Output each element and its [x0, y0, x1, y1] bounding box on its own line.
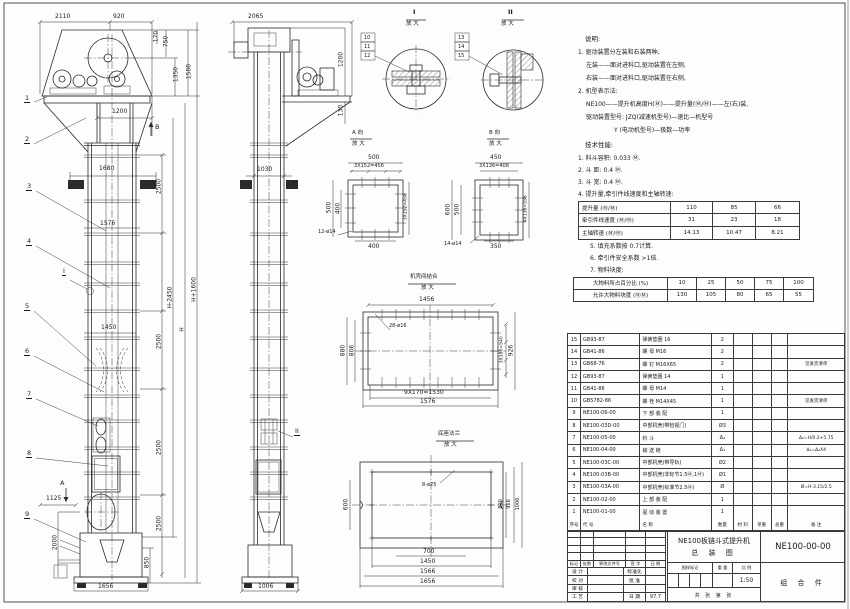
view-b-holes: 14-ø14	[444, 241, 462, 247]
balloon-14: 14	[458, 44, 464, 50]
detail-ii-subtitle: 放 大	[501, 21, 514, 28]
lump-table-row: 大物料所占百分比 (%) 10 25 50 75 100	[574, 278, 813, 290]
balloon-15: 15	[458, 53, 464, 59]
bom-row: 2 NE100-02-00 上 部 装 配 1	[568, 494, 844, 506]
balloon-10: 10	[364, 35, 370, 41]
dim-h-minus-2450: H-2450	[167, 281, 174, 315]
speed-table-row: 提升量 (Ⓜ/Ⓜ) 110 85 66	[579, 202, 799, 214]
sheet-count: 共 张 第 张	[668, 588, 760, 602]
view-a-subtitle: 放 大	[352, 141, 365, 148]
weight-label: 重 量	[713, 563, 733, 574]
side-elevation-view	[228, 20, 354, 593]
balloon-13: 13	[458, 35, 464, 41]
balloon-7: 7	[26, 391, 32, 399]
bom-row: 4 NE100-03B-00 中部机壳(非标节1.5Ⓜ,1Ⓜ) Ø1	[568, 469, 844, 481]
dim-h-plus-1600: H+1600	[191, 273, 198, 307]
bom-row: 11 GB41-86 螺 母 M14 1	[568, 383, 844, 395]
spec-item-6: 6. 牵引件安全系数 >1倍.	[590, 255, 658, 262]
dim-2065: 2065	[248, 13, 263, 20]
view-b-dim-bottom: 350	[490, 243, 501, 250]
speed-table: 提升量 (Ⓜ/Ⓜ) 110 85 66 牵引件线速度 (Ⓜ/Ⓜ) 31 23 1…	[578, 201, 800, 240]
balloon-1: 1	[24, 95, 30, 103]
rev-col-sign: 签 字	[626, 561, 646, 568]
spec-item-4: 4. 提升量,牵引件线速度和主轴转速:	[578, 191, 674, 198]
bom-row: 8 NE100-03D-00 中部机壳(带检视门) Ø3	[568, 420, 844, 432]
dim-2500-2: 2500	[156, 325, 163, 359]
base-dim-1006: 1006	[515, 487, 521, 521]
rev-col-mark: 标记	[568, 561, 581, 568]
base-dim-600: 600	[343, 488, 350, 522]
balloon-5: 5	[24, 303, 30, 311]
dim-2500-4: 2500	[156, 507, 163, 541]
balloon-12: 12	[364, 53, 370, 59]
dim-850: 850	[144, 546, 151, 580]
balloon-4: 4	[26, 238, 32, 246]
spec-item-3: 3. 斗 宽: 0.4 Ⓜ.	[578, 179, 623, 186]
title-block-right: NE100-00-00 组 合 件	[761, 531, 845, 602]
view-a-dim-left2: 400	[335, 192, 342, 226]
stamp-box-row: 1:50	[668, 574, 760, 588]
spec-item-7: 7. 物料块度:	[590, 267, 624, 274]
bom-row: 3 NE100-03A-00 中部机壳(标准节2.5Ⓜ) Ø Ø=H-3.15/…	[568, 482, 844, 494]
dim-920: 920	[113, 13, 124, 20]
base-flange-detail	[350, 441, 522, 588]
base-dim-700: 700	[423, 548, 434, 555]
bom-row: 14 GB41-86 螺 母 M16 2	[568, 346, 844, 358]
view-a-title: A 向	[352, 130, 363, 137]
dim-1576: 1576	[100, 220, 115, 227]
note-line-3: 右装——面对进料口,驱动装置在右侧,	[586, 75, 686, 82]
lump-size-table: 大物料所占百分比 (%) 10 25 50 75 100 允许大物料块度 (ⓂⓂ…	[573, 277, 814, 302]
view-a-dim-right: 3X152=456	[403, 190, 409, 224]
view-b-title: B 向	[489, 130, 500, 137]
base-dim-1566: 1566	[420, 568, 435, 575]
front-elevation-view	[42, 30, 156, 588]
bom-table: 15 GB93-87 弹簧垫圈 16 2 14 GB41-86 螺 母 M16 …	[567, 333, 845, 532]
dim-1200: 1200	[112, 108, 127, 115]
notes-heading: 说明:	[585, 36, 600, 43]
note-line-7: Y (电动机型号)—极数—功率	[614, 127, 690, 134]
bom-row: 10 GB5782-86 螺 栓 M14X45 1 见发货清单	[568, 395, 844, 407]
dim-2110: 2110	[55, 13, 70, 20]
balloon-8: 8	[26, 450, 32, 458]
joint-dim-540: 3X180=540	[499, 333, 505, 367]
scale-value: 1:50	[733, 574, 760, 588]
note-line-4: 2. 机型表示法:	[578, 88, 618, 95]
view-b-dim-top: 450	[490, 154, 501, 161]
balloon-6: 6	[24, 348, 30, 356]
dim-750: 750	[163, 25, 170, 59]
base-dim-1450: 1450	[420, 558, 435, 565]
dim-side-1200: 1200	[338, 43, 345, 77]
base-detail-title: 底座法兰	[438, 431, 460, 438]
drawing-title: NE100板链斗式提升机	[678, 536, 750, 546]
joint-detail-subtitle: 放 大	[421, 285, 434, 292]
detail-marker-i: I	[62, 268, 66, 276]
base-dim-1656: 1656	[420, 578, 435, 585]
view-b-dim-right: 4X139=556	[523, 192, 529, 226]
revision-grid: 标记 处数 更改文件号 签 字 日 期	[568, 531, 667, 568]
dim-2500-3: 2500	[156, 431, 163, 465]
bom-row: 9 NE100-06-00 下 部 装 配 1	[568, 408, 844, 420]
signature-row: 审 核	[568, 585, 667, 593]
view-a-dim-bottom: 400	[368, 243, 379, 250]
title-block-left: 标记 处数 更改文件号 签 字 日 期 设 计 标准化 校 对 批 准	[568, 531, 668, 602]
part-type: 组 合 件	[761, 563, 845, 602]
bom-row: 5 NE100-03C-00 中部机壳(带导轨) Ø2	[568, 457, 844, 469]
view-b-dim-left: 600	[445, 193, 452, 227]
joint-dim-1576: 1576	[420, 398, 435, 405]
joint-dim-806: 806	[349, 334, 356, 368]
signature-row: 设 计 标准化	[568, 568, 667, 576]
note-line-1: 1. 驱动装置分左装和右装两种,	[578, 49, 660, 56]
joint-detail-title: 机壳间结合	[410, 274, 438, 281]
detail-i-view	[361, 20, 450, 113]
joint-dim-926: 926	[508, 334, 515, 368]
drawing-number: NE100-00-00	[761, 531, 845, 563]
bom-row: 7 NE100-05-00 料 斗 Δ₂ Δ₂=H/0.2+5.75	[568, 432, 844, 444]
title-block-middle: NE100板链斗式提升机 总 装 图 图样标记 重 量 比 例 1:50 共 张…	[668, 531, 761, 602]
signature-row: 校 对 批 准	[568, 576, 667, 584]
dim-1350: 1350	[173, 58, 180, 92]
view-b-subtitle: 放 大	[489, 141, 502, 148]
bom-row: 12 GB93-87 弹簧垫圈 14 1	[568, 371, 844, 383]
base-holes: 8-ø25	[422, 482, 436, 488]
dim-1500: 1500	[186, 55, 193, 89]
spec-heading: 技术性能:	[585, 142, 613, 149]
bom-row: 1 NE100-01-00 驱 动 装 置 1	[568, 506, 844, 518]
spec-item-2: 2. 斗 距: 0.4 Ⓜ.	[578, 167, 623, 174]
rev-col-date: 日 期	[646, 561, 666, 568]
section-marker-a: A	[60, 480, 64, 487]
view-a-holes: 12-ø14	[318, 229, 336, 235]
detail-i-subtitle: 放 大	[406, 21, 419, 28]
dim-130: 130	[338, 94, 345, 128]
detail-marker-ii: II	[294, 428, 300, 436]
base-dim-800: 800	[498, 487, 504, 521]
dim-2500-1: 2500	[156, 170, 163, 204]
balloon-11: 11	[364, 44, 370, 50]
signature-rows: 设 计 标准化 校 对 批 准 审 核	[568, 568, 667, 602]
rev-col-count: 处数	[581, 561, 594, 568]
spec-item-5: 5. 填充系数按 0.7计算.	[590, 243, 653, 250]
rev-col-docno: 更改文件号	[594, 561, 626, 568]
joint-dim-1456: 1456	[419, 296, 434, 303]
view-a-dim-top2: 3X152=456	[354, 163, 384, 169]
note-line-2: 左装——面对进料口,驱动装置在左侧,	[586, 62, 686, 69]
scale-label: 比 例	[733, 563, 760, 574]
joint-holes: 28-ø16	[389, 323, 407, 329]
dim-h: H	[179, 313, 186, 347]
balloon-3: 3	[26, 183, 32, 191]
drawing-sheet: .ln{stroke:#2a2a2a;stroke-width:0.8;fill…	[0, 0, 850, 609]
dim-170: 170	[153, 20, 160, 54]
base-dim-916: 916	[506, 487, 512, 521]
bom-row: 13 GB68-76 螺 钉 M16X65 2 见发货清单	[568, 359, 844, 371]
view-a-dim-top: 500	[368, 154, 379, 161]
section-marker-b: B	[155, 124, 159, 131]
dim-1006: 1006	[258, 583, 273, 590]
view-b-dim-top2: 3X136=408	[479, 163, 509, 169]
detail-ii-title: II	[508, 9, 513, 16]
base-detail-subtitle: 放 大	[444, 442, 457, 449]
joint-dim-880: 880	[340, 334, 347, 368]
dim-1656: 1656	[98, 583, 113, 590]
balloon-2: 2	[24, 136, 30, 144]
lump-table-row: 允许大物料块度 (ⓂⓂ) 130 105 80 65 55	[574, 290, 813, 302]
signature-row: 工 艺 日 期 97.7	[568, 593, 667, 601]
stamp-header-row: 图样标记 重 量 比 例	[668, 563, 760, 574]
note-line-6: 驱动装置型号: JZQ(减速机型号)—速比—机型号	[586, 114, 713, 121]
view-b-dim-left2: 500	[454, 193, 461, 227]
note-line-5: NE100——提升机高度H(Ⓜ)——提升量(Ⓜ/Ⓜ)——左(右)装,	[586, 101, 748, 108]
dim-1450: 1450	[101, 324, 116, 331]
dim-1680: 1680	[99, 165, 114, 172]
bom-row: 15 GB93-87 弹簧垫圈 16 2	[568, 334, 844, 346]
speed-table-row: 主轴转速 (Ⓜ/Ⓜ) 14.13 10.47 8.21	[579, 227, 799, 239]
front-dimensions	[34, 20, 201, 591]
stamp-mark-label: 图样标记	[668, 563, 713, 574]
detail-i-title: I	[413, 9, 415, 16]
dim-2000: 2000	[52, 526, 59, 560]
speed-table-row: 牵引件线速度 (Ⓜ/Ⓜ) 31 23 18	[579, 214, 799, 226]
joint-dim-1530: 9X170=1530	[404, 389, 444, 396]
view-a-dim-left: 500	[326, 191, 333, 225]
drawing-title-cell: NE100板链斗式提升机 总 装 图	[668, 531, 760, 563]
bom-rows: 15 GB93-87 弹簧垫圈 16 2 14 GB41-86 螺 母 M16 …	[568, 334, 844, 518]
detail-ii-view	[455, 20, 545, 110]
spec-item-1: 1. 料斗容积: 0.033 Ⓜ.	[578, 155, 641, 162]
drawing-subtitle: 总 装 图	[691, 548, 736, 558]
bom-row: 6 NE100-04-00 输 送 链 Δ₁ Δ₁=Δ₂X4	[568, 445, 844, 457]
dim-1030: 1030	[257, 166, 272, 173]
dim-1125: 1125	[46, 495, 61, 502]
balloon-9: 9	[24, 511, 30, 519]
title-block: 标记 处数 更改文件号 签 字 日 期 设 计 标准化 校 对 批 准	[567, 530, 845, 602]
